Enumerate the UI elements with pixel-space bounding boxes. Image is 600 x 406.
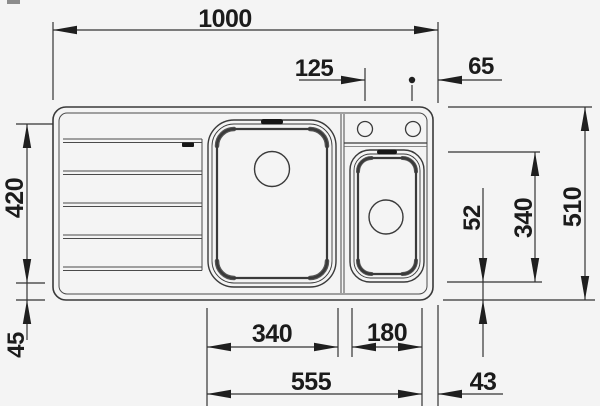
arrowhead	[479, 300, 487, 324]
small-bowl-mid-edge	[354, 154, 420, 278]
faucet-hole-left	[358, 122, 373, 137]
arrowhead	[314, 343, 338, 351]
arrowhead	[479, 258, 487, 282]
arrowhead	[398, 390, 422, 398]
dim-faucet-spacing-label: 125	[295, 55, 334, 82]
bottom-dimensions: 340 180 555 43	[207, 305, 503, 406]
dim-bowls-combined-width-label: 555	[291, 368, 332, 396]
main-bowl-drain-hole	[255, 152, 290, 187]
brand-logo-mark	[182, 143, 194, 148]
arrowhead	[438, 76, 462, 84]
small-bowl-corner-shading	[358, 158, 416, 274]
arrowhead	[23, 300, 31, 324]
small-bowl	[350, 150, 424, 283]
left-dimensions: 420 45	[1, 124, 53, 358]
main-bowl-outer-edge	[208, 120, 336, 287]
arrowhead	[531, 152, 539, 176]
dim-main-bowl-depth-label: 420	[1, 178, 29, 218]
arrowhead	[341, 76, 365, 84]
dim-overall-width-label: 1000	[198, 5, 252, 33]
main-bowl	[208, 119, 336, 287]
faucet-hole-right	[406, 122, 421, 137]
drainboard-ribs	[63, 139, 202, 271]
arrowhead	[581, 107, 589, 131]
dim-small-bowl-depth-label: 340	[510, 198, 538, 238]
main-bowl-mid-edge	[212, 124, 332, 283]
drainboard	[63, 139, 202, 271]
sink-technical-drawing: 1000 125 65 420 45	[0, 0, 600, 406]
top-dimensions: 1000 125 65	[53, 5, 502, 103]
dim-main-bowl-front-offset-label: 45	[3, 332, 30, 358]
faucet-center-dot	[409, 77, 415, 83]
right-dimensions: 510 340 52	[443, 107, 595, 357]
arrowhead	[23, 259, 31, 283]
arrowhead	[53, 26, 77, 34]
arrowhead	[581, 276, 589, 300]
small-bowl-overflow-slot	[377, 150, 397, 155]
dim-main-bowl-width-label: 340	[252, 320, 292, 348]
main-bowl-overflow-slot	[261, 119, 283, 125]
drawing-canvas: 1000 125 65 420 45	[0, 0, 600, 406]
dim-small-bowl-width-label: 180	[367, 319, 407, 347]
dim-small-bowl-edge-offset-label: 43	[470, 368, 497, 396]
small-bowl-inner-edge	[358, 158, 416, 274]
arrowhead	[531, 258, 539, 282]
arrowhead	[438, 390, 462, 398]
dim-overall-depth-label: 510	[559, 187, 587, 227]
arrowhead	[207, 343, 231, 351]
sink-body	[53, 107, 433, 300]
dimension-annotations: 1000 125 65 420 45	[1, 5, 595, 406]
small-bowl-outer-edge	[350, 150, 424, 282]
arrowhead	[23, 124, 31, 148]
arrowhead	[414, 26, 438, 34]
scan-artifact	[7, 0, 20, 4]
arrowhead	[207, 390, 231, 398]
small-bowl-drain-hole	[369, 200, 403, 234]
dim-faucet-to-edge-label: 65	[468, 53, 494, 80]
dim-small-bowl-front-offset-label: 52	[459, 205, 486, 231]
